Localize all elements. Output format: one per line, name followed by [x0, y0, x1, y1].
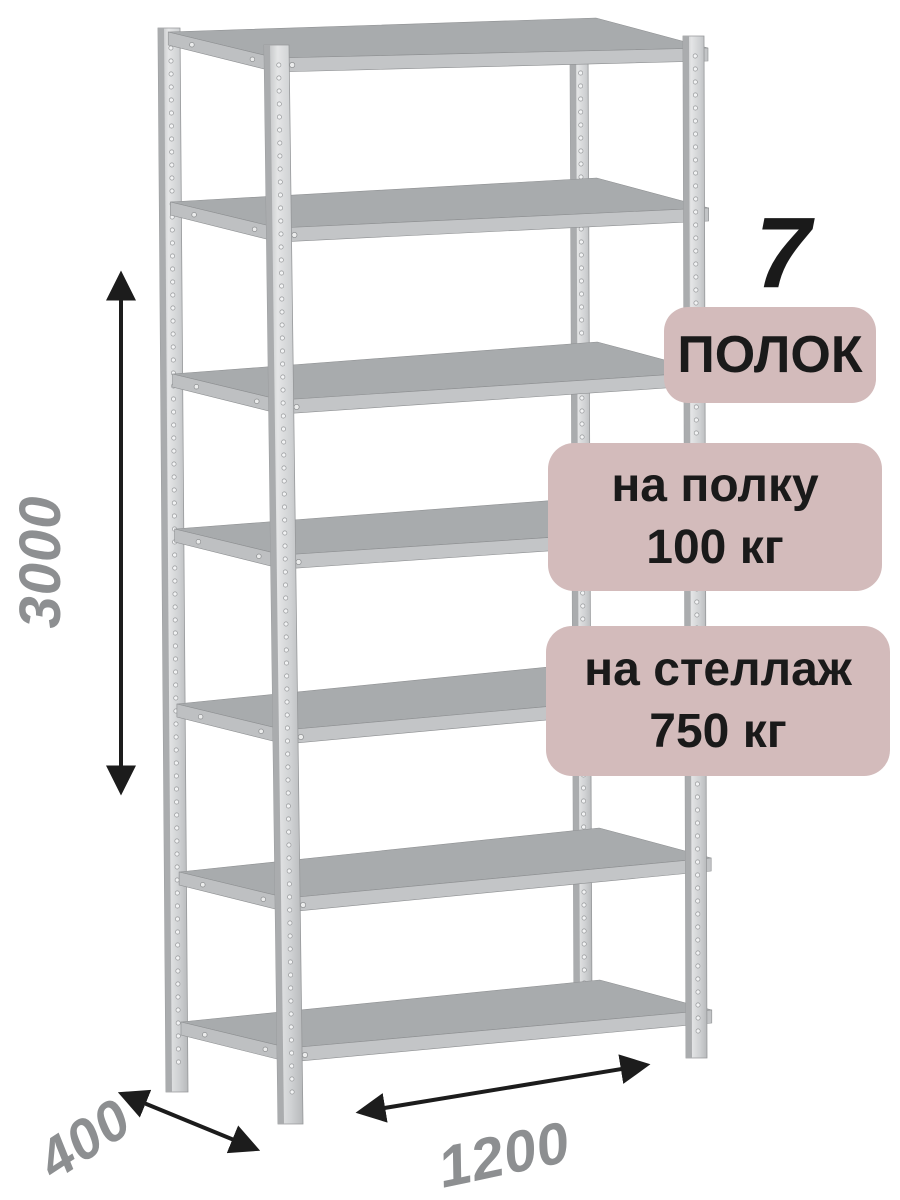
width-dimension-label: 1200 — [432, 1109, 576, 1200]
depth-dimension-label: 400 — [26, 1086, 142, 1192]
rack-post — [158, 28, 188, 1092]
height-dimension-label: 3000 — [8, 495, 73, 628]
badge-shelf-count: ПОЛОК — [664, 307, 876, 403]
badge-line: на полку — [611, 455, 818, 517]
badge-shelf-load: на полку 100 кг — [548, 443, 882, 591]
depth-dimension-arrow — [122, 1094, 256, 1149]
shelf — [179, 828, 711, 912]
rack-illustration: 3000 400 1200 — [0, 0, 900, 1200]
product-image-shelving-rack: 3000 400 1200 7 ПОЛОК на полку 100 кг на… — [0, 0, 900, 1200]
shelf — [173, 342, 710, 414]
shelf — [168, 18, 708, 72]
badge-line: на стеллаж — [584, 639, 852, 701]
badge-rack-load: на стеллаж 750 кг — [546, 626, 890, 776]
shelf-count-number: 7 — [718, 203, 848, 307]
badge-line: 750 кг — [649, 701, 786, 763]
width-dimension-arrow — [360, 1065, 646, 1112]
badge-line: 100 кг — [646, 517, 783, 579]
shelf — [170, 178, 708, 242]
badge-line: ПОЛОК — [677, 325, 862, 385]
shelf — [181, 980, 712, 1062]
